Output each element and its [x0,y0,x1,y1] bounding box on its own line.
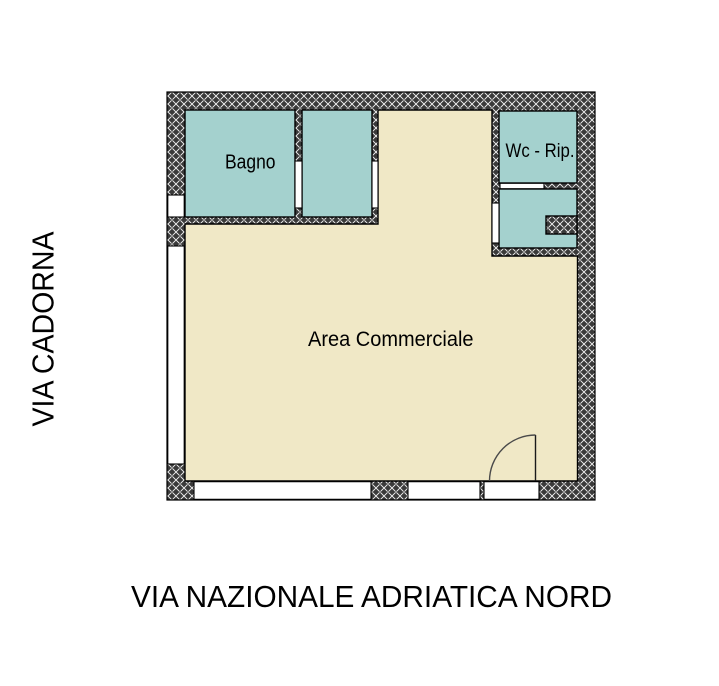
svg-text:Bagno: Bagno [225,152,276,174]
svg-text:Area Commerciale: Area Commerciale [308,328,474,351]
svg-text:VIA NAZIONALE ADRIATICA NORD: VIA NAZIONALE ADRIATICA NORD [131,579,612,614]
svg-text:VIA CADORNA: VIA CADORNA [26,231,61,426]
svg-text:Wc - Rip.: Wc - Rip. [506,140,575,162]
